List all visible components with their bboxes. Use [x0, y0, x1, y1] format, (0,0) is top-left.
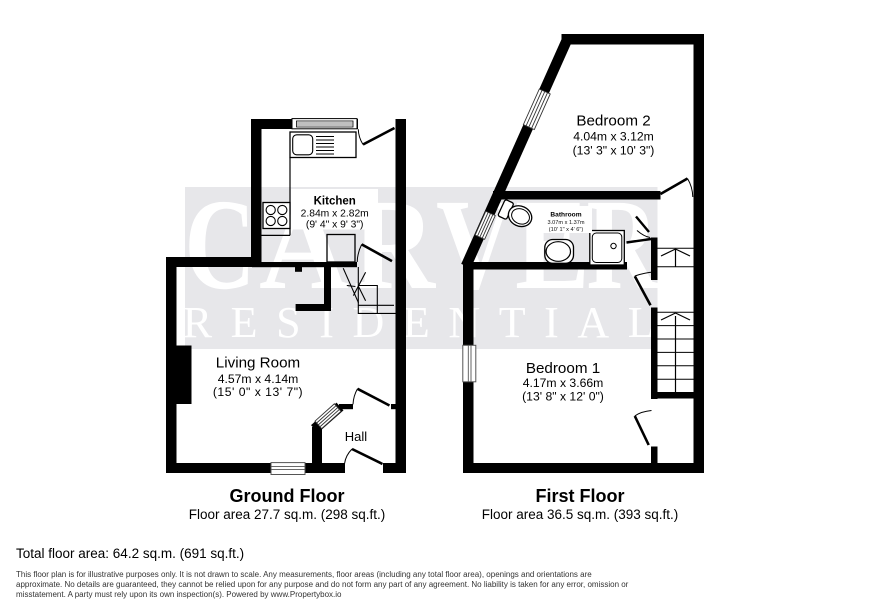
- svg-text:Bedroom 1: Bedroom 1: [526, 360, 600, 377]
- svg-text:Floor area 36.5 sq.m. (393 sq.: Floor area 36.5 sq.m. (393 sq.ft.): [482, 507, 679, 522]
- svg-text:(13' 8" x 12' 0"): (13' 8" x 12' 0"): [522, 390, 604, 404]
- svg-text:C: C: [185, 173, 256, 317]
- svg-text:Bedroom 2: Bedroom 2: [576, 113, 650, 130]
- svg-text:(15' 0" x 13' 7"): (15' 0" x 13' 7"): [213, 385, 303, 399]
- svg-text:4.17m x 3.66m: 4.17m x 3.66m: [523, 376, 604, 390]
- svg-text:2.84m x 2.82m: 2.84m x 2.82m: [301, 208, 369, 219]
- svg-text:approximate. No details are gu: approximate. No details are guaranteed, …: [16, 580, 629, 589]
- svg-text:Living Room: Living Room: [216, 355, 300, 372]
- svg-text:This floor plan is for illustr: This floor plan is for illustrative purp…: [16, 570, 592, 579]
- svg-text:Ground Floor: Ground Floor: [230, 486, 345, 506]
- svg-text:(10' 1" x 4' 6"): (10' 1" x 4' 6"): [549, 227, 584, 233]
- svg-text:Total floor area: 64.2 sq.m. (: Total floor area: 64.2 sq.m. (691 sq.ft.…: [16, 546, 244, 561]
- svg-text:Bathroom: Bathroom: [550, 212, 581, 219]
- svg-text:Floor area 27.7 sq.m. (298 sq.: Floor area 27.7 sq.m. (298 sq.ft.): [189, 507, 386, 522]
- svg-text:Kitchen: Kitchen: [314, 196, 356, 208]
- svg-text:First Floor: First Floor: [536, 486, 625, 506]
- svg-text:RESIDENTIAL: RESIDENTIAL: [183, 298, 674, 347]
- svg-text:4.04m x 3.12m: 4.04m x 3.12m: [573, 129, 654, 143]
- svg-text:(13' 3" x 10' 3"): (13' 3" x 10' 3"): [573, 144, 655, 158]
- svg-text:(9' 4" x 9' 3"): (9' 4" x 9' 3"): [306, 219, 364, 230]
- svg-text:4.57m x 4.14m: 4.57m x 4.14m: [218, 372, 299, 386]
- svg-text:Hall: Hall: [345, 429, 368, 444]
- svg-text:3.07m x 1.37m: 3.07m x 1.37m: [548, 220, 585, 226]
- svg-text:misstatement. A party must rel: misstatement. A party must rely upon its…: [16, 590, 342, 599]
